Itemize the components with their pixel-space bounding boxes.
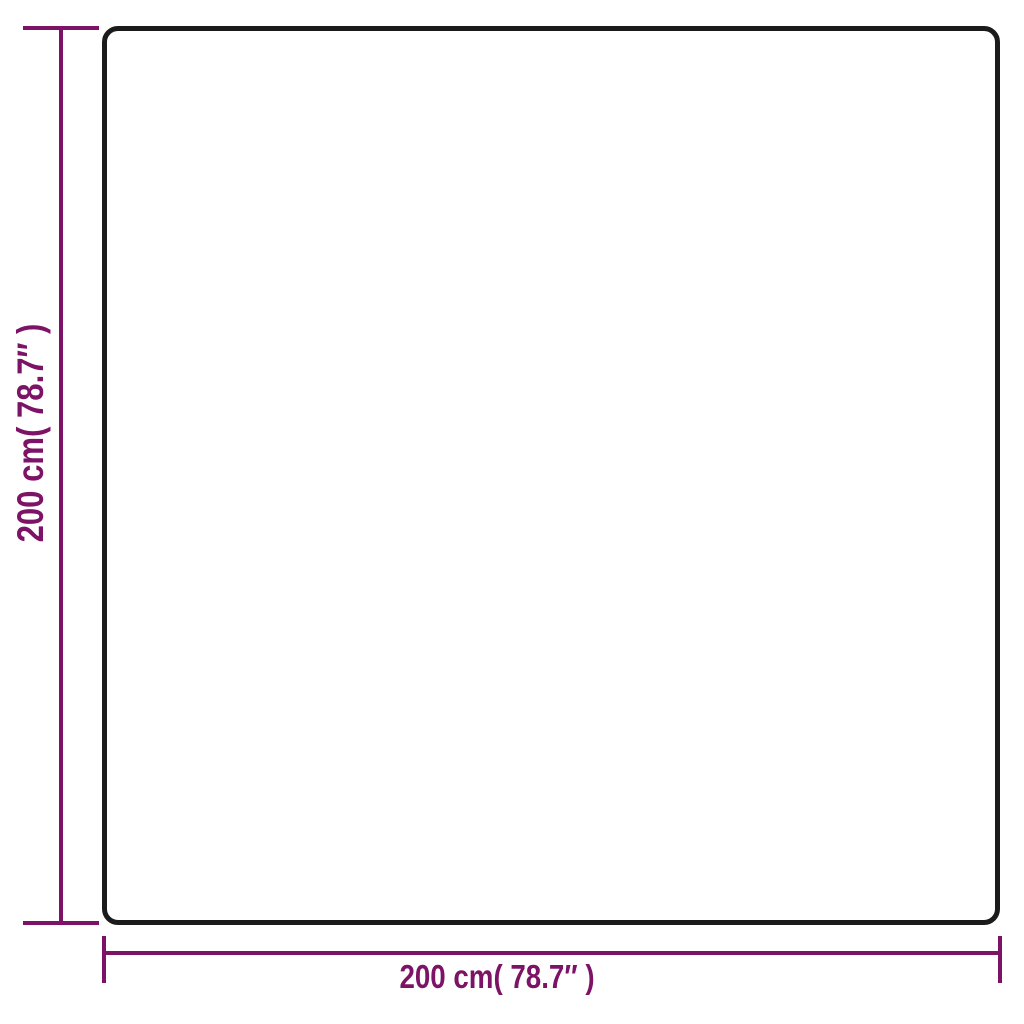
height-dimension-line [59, 26, 63, 925]
height-dimension-cap-bottom [23, 921, 99, 925]
width-dimension-cap-left [102, 936, 106, 983]
width-dimension-cap-right [998, 936, 1002, 983]
width-dimension-line [102, 951, 1002, 955]
product-outline-square [102, 26, 1000, 925]
width-dimension-label: 200 cm( 78.7″ ) [399, 958, 594, 996]
product-dimension-image: 200 cm( 78.7″ ) 200 cm( 78.7″ ) [0, 0, 1024, 1024]
height-dimension-label: 200 cm( 78.7″ ) [10, 324, 52, 543]
